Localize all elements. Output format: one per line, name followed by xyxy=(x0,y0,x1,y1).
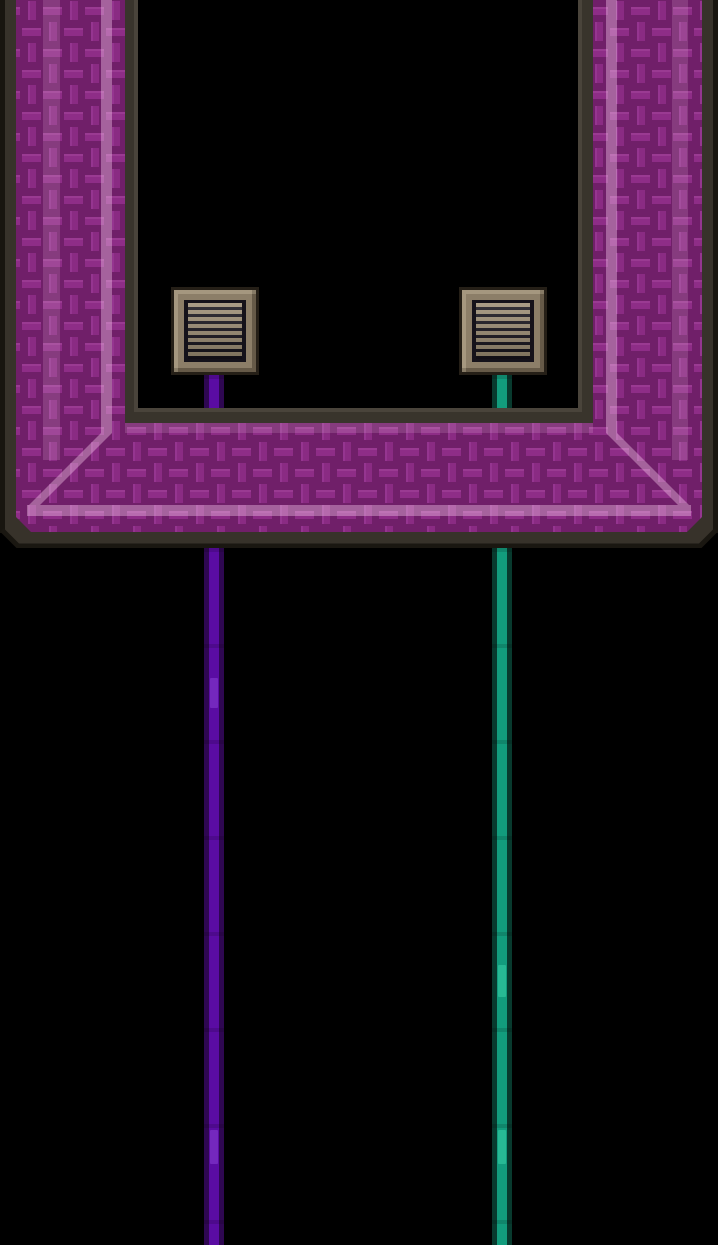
green-wire-highlight xyxy=(498,965,506,997)
frame-outline-left xyxy=(0,0,5,533)
purple-wire-highlight xyxy=(210,678,218,708)
fabric-chamber-frame xyxy=(0,0,718,548)
frame-outline-right xyxy=(713,0,718,533)
inner-bevel-floor xyxy=(134,408,582,412)
vent-cavity xyxy=(184,300,246,362)
vent-slats xyxy=(476,303,530,359)
green-wire-highlight xyxy=(498,1130,506,1164)
green-wire-stub xyxy=(492,375,512,408)
purple-wire[interactable] xyxy=(204,548,224,1245)
vent-slats xyxy=(188,303,242,359)
vent-cavity xyxy=(472,300,534,362)
green-wire[interactable] xyxy=(492,548,512,1245)
inner-bevel-right xyxy=(578,0,582,412)
vent-grate-left[interactable] xyxy=(171,287,259,375)
inner-bevel-left xyxy=(134,0,138,412)
game-scene xyxy=(0,0,718,1245)
purple-wire-stub xyxy=(204,375,224,408)
vent-grate-right[interactable] xyxy=(459,287,547,375)
purple-wire-highlight xyxy=(210,1130,218,1164)
